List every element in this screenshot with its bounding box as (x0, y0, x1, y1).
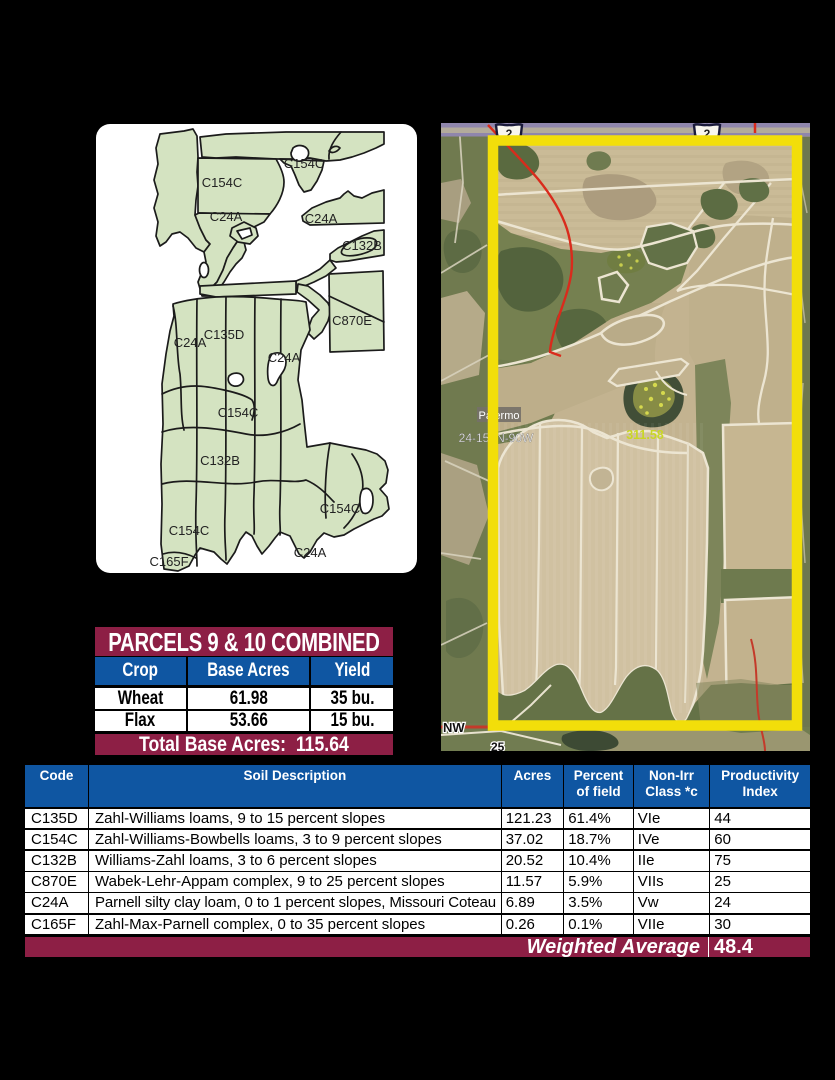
svg-text:C24A: C24A (268, 350, 301, 365)
svg-text:C24A: C24A (294, 545, 327, 560)
svg-text:C165F: C165F (149, 554, 188, 569)
svg-text:C24A: C24A (174, 335, 207, 350)
svg-text:C154C: C154C (320, 501, 360, 516)
svg-text:C154C: C154C (284, 156, 324, 171)
svg-text:311.58: 311.58 (626, 428, 664, 442)
svg-text:C132B: C132B (342, 238, 382, 253)
svg-text:C132B: C132B (200, 453, 240, 468)
svg-text:Palermo: Palermo (479, 410, 520, 422)
svg-text:C154C: C154C (169, 523, 209, 538)
svg-text:C24A: C24A (305, 211, 338, 226)
svg-text:NW: NW (443, 720, 465, 735)
svg-text:25: 25 (491, 740, 505, 751)
svg-text:C24A: C24A (210, 209, 243, 224)
svg-text:C870E: C870E (332, 313, 372, 328)
svg-text:C154C: C154C (202, 175, 242, 190)
svg-text:C135D: C135D (204, 327, 244, 342)
svg-text:C154C: C154C (218, 405, 258, 420)
